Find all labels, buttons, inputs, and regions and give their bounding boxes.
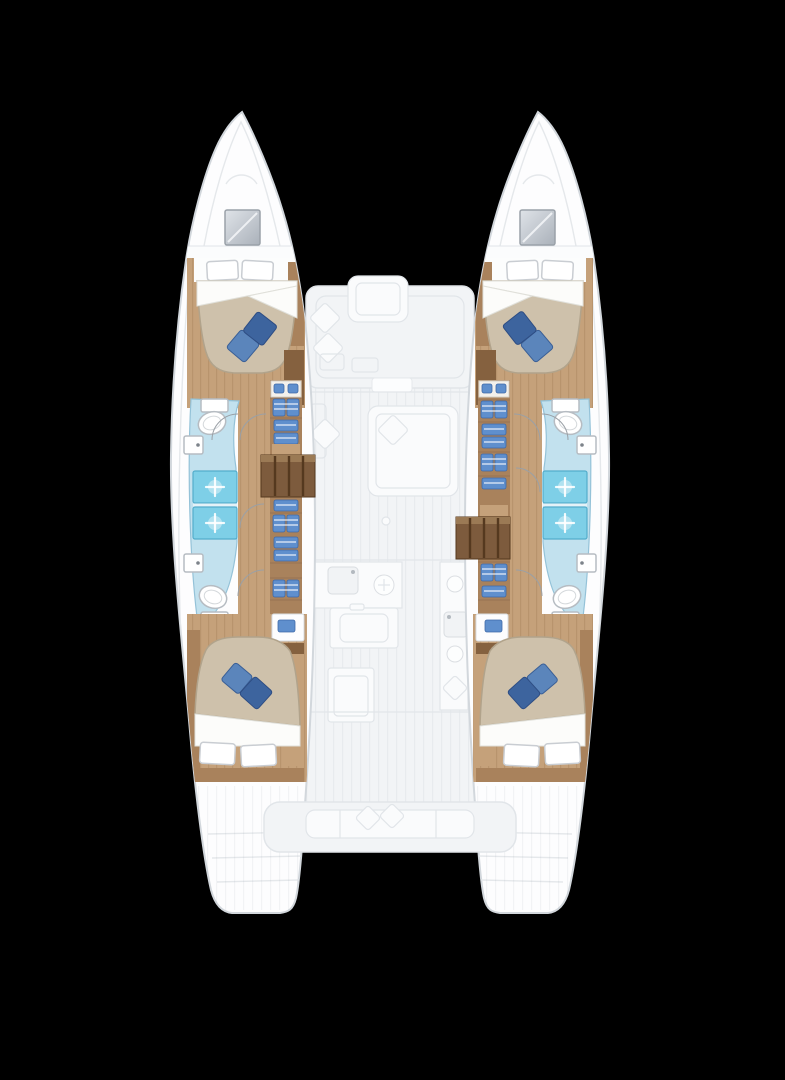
white-pillow bbox=[240, 744, 276, 767]
toilet-cistern bbox=[552, 399, 579, 412]
berth-foot-board bbox=[190, 768, 304, 782]
white-pillow bbox=[503, 744, 539, 767]
drawer-icon bbox=[278, 620, 295, 632]
port-aft-cabin bbox=[187, 614, 307, 782]
drawer-icon bbox=[288, 384, 298, 393]
saloon-forward-door bbox=[372, 378, 412, 392]
drawer-icon bbox=[482, 586, 506, 597]
stove-burner-icon bbox=[447, 576, 463, 592]
berth-foot-board bbox=[476, 768, 590, 782]
floor-grain bbox=[508, 396, 542, 622]
sink-icon bbox=[577, 554, 596, 572]
drawer-icon bbox=[482, 384, 492, 393]
stair-landing bbox=[272, 444, 300, 455]
drawer-icon bbox=[482, 478, 506, 489]
drawer-icon bbox=[274, 537, 298, 548]
starboard-companionway-stairs bbox=[456, 517, 510, 559]
faucet-icon bbox=[447, 615, 451, 619]
stair-landing bbox=[480, 505, 508, 516]
faucet-icon bbox=[196, 561, 200, 565]
drawer-icon bbox=[485, 620, 502, 632]
white-pillow bbox=[541, 260, 573, 281]
sink-icon bbox=[184, 554, 203, 572]
forward-cockpit bbox=[306, 276, 474, 392]
faucet-icon bbox=[196, 443, 200, 447]
drawer-icon bbox=[482, 424, 506, 435]
floor-plan-canvas bbox=[0, 0, 785, 1080]
drawer-icon bbox=[274, 550, 298, 561]
aft-cockpit bbox=[264, 802, 516, 852]
catamaran-floor-plan bbox=[0, 0, 785, 1080]
drawer-icon bbox=[274, 433, 298, 444]
bridge-deck bbox=[304, 276, 476, 806]
galley-island-tap bbox=[350, 604, 364, 610]
toilet-cistern bbox=[201, 399, 228, 412]
faucet-icon bbox=[580, 443, 584, 447]
white-pillow bbox=[241, 260, 273, 281]
port-companionway-stairs bbox=[261, 455, 315, 497]
saloon-sofa-table bbox=[368, 406, 458, 496]
white-pillow bbox=[507, 260, 539, 281]
faucet-icon bbox=[580, 561, 584, 565]
sink-icon bbox=[577, 436, 596, 454]
drawer-icon bbox=[274, 384, 284, 393]
faucet-icon bbox=[351, 570, 355, 574]
floor-grain bbox=[238, 396, 272, 622]
drawer-icon bbox=[482, 437, 506, 448]
drawer-icon bbox=[274, 420, 298, 431]
white-pillow bbox=[544, 742, 580, 765]
drawer-icon bbox=[496, 384, 506, 393]
drawer-icon bbox=[274, 500, 298, 511]
white-pillow bbox=[207, 260, 239, 281]
table-leg bbox=[382, 517, 390, 525]
sink-icon bbox=[184, 436, 203, 454]
stove-burner-icon bbox=[447, 646, 463, 662]
white-pillow bbox=[199, 742, 235, 765]
starboard-aft-cabin bbox=[473, 614, 593, 782]
